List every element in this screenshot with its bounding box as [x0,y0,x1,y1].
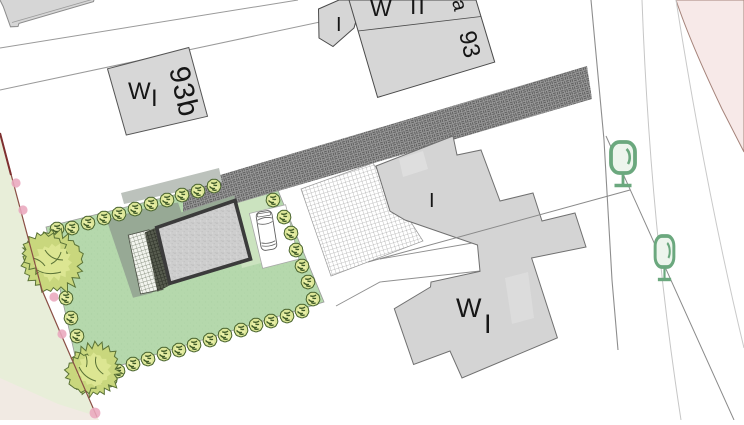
svg-text:W: W [456,293,482,323]
svg-text:W: W [370,0,392,21]
svg-text:I: I [429,190,435,212]
svg-text:I: I [151,85,158,112]
svg-text:I: I [484,309,492,339]
svg-text:I: I [336,14,342,36]
svg-text:II: II [410,0,427,19]
svg-text:W: W [128,78,151,105]
